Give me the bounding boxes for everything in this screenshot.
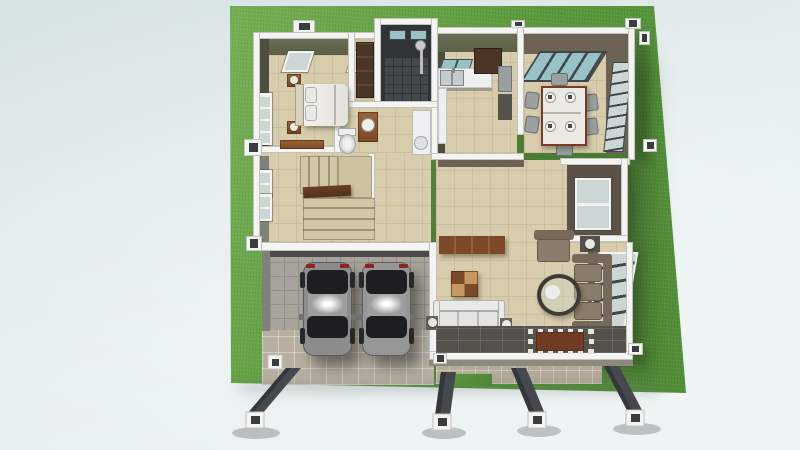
car-right-wheel-1 [359, 272, 364, 288]
place-setting-3 [546, 122, 555, 131]
armchair [537, 239, 570, 262]
accent-tiles-right [589, 329, 594, 354]
wall-kitchen-dining-divider [517, 27, 524, 135]
car-left-rear-window [307, 270, 348, 294]
bay-window [575, 178, 611, 230]
car-left-windshield [307, 316, 348, 338]
car-right-mirror-l [358, 314, 363, 320]
wall-west [253, 32, 260, 244]
kitchen-counter-left [438, 88, 447, 144]
toilet-bowl [340, 135, 355, 153]
car-left-roof [308, 294, 347, 316]
column-cap-2 [433, 414, 451, 430]
car-right [362, 262, 411, 356]
column-cap-3 [528, 412, 546, 428]
entry-rug [537, 333, 583, 350]
car-left-wheel-3 [300, 328, 305, 344]
kitchen-appliance [498, 94, 512, 120]
car-right-taillight-r [399, 264, 408, 268]
double-sink [441, 71, 463, 85]
bed-headboard [295, 84, 304, 126]
place-setting-2 [566, 93, 575, 102]
floorplan-render [0, 0, 800, 450]
dining-chair-left-1 [524, 91, 540, 110]
shower-bar [420, 50, 423, 74]
column-shadow-4 [613, 423, 661, 435]
white-vanity-basin [414, 136, 428, 150]
wall-bay-east [621, 158, 628, 242]
loveseat-back [437, 300, 501, 311]
car-left-taillight-r [340, 264, 349, 268]
duvet-fold [334, 85, 336, 125]
pillow-2 [305, 105, 317, 121]
shower-window-2 [410, 30, 427, 40]
kitchen-faucet [452, 68, 455, 73]
wall-pillar-ne-2 [639, 31, 650, 45]
column-shadow-3 [517, 425, 561, 437]
column-shadow-1 [232, 427, 280, 439]
wall-pillar-chimney [293, 20, 315, 33]
wall-kitchen-dining-north [431, 27, 635, 34]
refrigerator [498, 66, 512, 92]
wall-pillar-se [628, 343, 643, 355]
wood-vanity-sink [361, 118, 375, 132]
sofa-cushion-1 [574, 264, 602, 282]
car-left-mirror-l [299, 314, 304, 320]
wall-pillar-east [643, 139, 657, 152]
wall-bedroom-east [348, 32, 355, 108]
wardrobe [356, 42, 374, 98]
place-setting-4 [566, 122, 575, 131]
kitchen-south-wallface [438, 160, 524, 167]
wall-pillar-kitchen [511, 20, 525, 28]
wall-shower-north [374, 18, 438, 25]
tv-console [439, 236, 505, 254]
wall-living-east [626, 242, 633, 354]
wall-shower-west [374, 18, 381, 108]
table-lamp-top [290, 76, 298, 84]
place-setting-1 [546, 93, 555, 102]
wall-dining-east [628, 27, 635, 160]
accent-tiles-left [528, 329, 533, 354]
column-cap-1-core [251, 416, 260, 424]
dining-table-gap [543, 112, 581, 114]
coffee-table-decor [545, 285, 560, 299]
car-right-wheel-4 [409, 328, 414, 344]
column-cap-4 [626, 410, 644, 426]
sofa-lamp-top [585, 239, 595, 249]
column-cap-1 [246, 412, 264, 428]
ground-shadow [240, 383, 660, 392]
wall-pillar-west-2 [246, 236, 262, 251]
wall-kitchen-west [431, 18, 438, 158]
bedroom-bench [280, 140, 324, 149]
car-right-wheel-2 [409, 272, 414, 288]
wall-bedroom-north [253, 32, 379, 39]
shower-window-1 [389, 30, 406, 40]
car-right-roof [367, 294, 406, 316]
wall-kitchen-south [431, 153, 524, 160]
car-right-windshield [366, 316, 407, 338]
pillow-1 [305, 87, 317, 103]
column-cap-3-core [533, 416, 542, 424]
south-exterior-face [429, 360, 633, 366]
garage-west-wallface [262, 251, 270, 331]
car-right-taillight-l [365, 264, 374, 268]
car-left-wheel-2 [350, 272, 355, 288]
car-right-wheel-3 [359, 328, 364, 344]
column-cap-2-core [438, 418, 447, 426]
wall-pillar-entry [433, 353, 447, 364]
garage-north-wallface [262, 251, 429, 257]
stairs-lower-flight [303, 198, 375, 240]
car-left-taillight-l [306, 264, 315, 268]
sofa-back [603, 254, 612, 330]
wall-pillar-ne-1 [625, 18, 641, 29]
car-right-mirror-r [410, 314, 415, 320]
car-left-wheel-1 [300, 272, 305, 288]
shower-head [416, 41, 425, 50]
wall-bathroom-north [348, 101, 438, 108]
cubby-table [451, 271, 478, 297]
dining-chair-left-2 [524, 115, 540, 134]
car-right-rear-window [366, 270, 407, 294]
car-left-wheel-4 [350, 328, 355, 344]
wall-garage-north [253, 242, 436, 251]
dining-chair-top [551, 73, 568, 86]
car-left-mirror-r [351, 314, 356, 320]
column-shadow-2 [422, 427, 466, 439]
wall-bay-north [560, 158, 630, 165]
wall-pillar-west-1 [244, 139, 262, 156]
column-cap-4-core [631, 414, 640, 422]
car-left [303, 262, 352, 356]
